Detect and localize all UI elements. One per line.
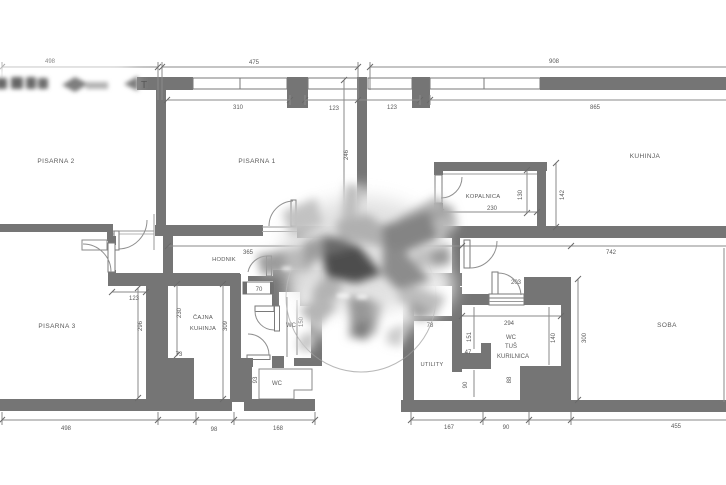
svg-text:KUHINJA: KUHINJA (630, 153, 661, 160)
svg-text:742: 742 (606, 250, 617, 256)
svg-text:296: 296 (138, 320, 144, 331)
svg-text:SOBA: SOBA (657, 322, 677, 329)
svg-text:246: 246 (344, 149, 350, 160)
svg-text:168: 168 (273, 426, 284, 432)
svg-text:78: 78 (427, 323, 434, 329)
svg-text:47: 47 (465, 350, 472, 356)
svg-text:93: 93 (253, 376, 259, 383)
svg-text:KOPALNICA: KOPALNICA (466, 194, 501, 200)
svg-text:WC: WC (272, 381, 283, 387)
svg-text:T: T (141, 80, 147, 91)
svg-text:123: 123 (129, 296, 140, 302)
svg-text:455: 455 (671, 424, 682, 430)
svg-text:294: 294 (504, 321, 515, 327)
svg-text:475: 475 (249, 60, 260, 66)
svg-text:PISARNA 3: PISARNA 3 (38, 323, 75, 330)
svg-text:498: 498 (45, 59, 56, 65)
svg-text:88: 88 (507, 376, 513, 383)
svg-text:PISARNA 1: PISARNA 1 (238, 158, 275, 165)
svg-text:90: 90 (503, 425, 510, 431)
svg-text:142: 142 (560, 189, 566, 200)
svg-text:KUHINJA: KUHINJA (190, 326, 216, 332)
svg-text:ČAJNA: ČAJNA (193, 314, 213, 321)
svg-text:98: 98 (211, 427, 218, 433)
svg-text:KURILNICA: KURILNICA (497, 354, 529, 360)
svg-text:300: 300 (582, 332, 588, 343)
svg-text:130: 130 (518, 189, 524, 200)
svg-text:123: 123 (387, 105, 398, 111)
svg-text:PISARNA 2: PISARNA 2 (37, 158, 74, 165)
svg-text:123: 123 (329, 106, 340, 112)
svg-text:140: 140 (551, 332, 557, 343)
svg-text:498: 498 (61, 426, 72, 432)
svg-text:HODNIK: HODNIK (212, 257, 236, 263)
svg-text:73: 73 (176, 352, 183, 358)
svg-text:230: 230 (487, 206, 498, 212)
svg-text:203: 203 (511, 280, 522, 286)
svg-text:365: 365 (243, 250, 254, 256)
svg-text:908: 908 (549, 59, 560, 65)
svg-text:70: 70 (256, 287, 263, 293)
svg-text:90: 90 (463, 381, 469, 388)
svg-text:310: 310 (233, 105, 244, 111)
svg-text:309: 309 (223, 320, 229, 331)
svg-text:WC: WC (286, 323, 297, 329)
svg-text:UTILITY: UTILITY (421, 362, 444, 368)
svg-text:167: 167 (444, 425, 455, 431)
svg-text:WC: WC (506, 335, 517, 341)
svg-text:230: 230 (177, 307, 183, 318)
svg-text:865: 865 (590, 105, 601, 111)
svg-text:151: 151 (467, 331, 473, 342)
svg-text:TUŠ: TUŠ (505, 343, 517, 350)
